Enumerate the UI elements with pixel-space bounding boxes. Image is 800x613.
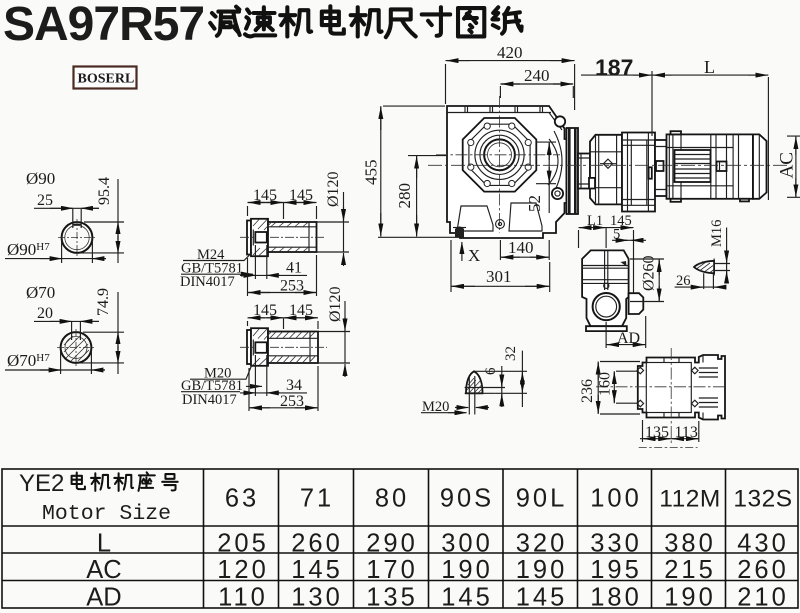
svg-text:145: 145 — [291, 556, 343, 584]
svg-text:260: 260 — [291, 530, 343, 558]
svg-text:95.4: 95.4 — [96, 177, 113, 205]
svg-text:Motor Size: Motor Size — [42, 502, 171, 526]
svg-text:160: 160 — [597, 372, 614, 396]
svg-text:145: 145 — [516, 584, 568, 612]
svg-text:280: 280 — [395, 183, 414, 209]
svg-text:L: L — [704, 57, 715, 77]
svg-text:190: 190 — [516, 556, 568, 584]
svg-text:Ø120: Ø120 — [327, 286, 344, 322]
svg-text:380: 380 — [664, 530, 716, 558]
svg-text:190: 190 — [441, 556, 493, 584]
svg-text:110: 110 — [218, 584, 268, 612]
svg-text:DIN4017: DIN4017 — [182, 392, 237, 408]
svg-text:260: 260 — [737, 556, 789, 584]
svg-text:M16: M16 — [709, 220, 725, 247]
svg-text:236: 236 — [579, 379, 596, 403]
svg-text:170: 170 — [366, 556, 418, 584]
svg-text:52: 52 — [525, 195, 544, 212]
svg-text:240: 240 — [524, 66, 550, 85]
svg-text:145: 145 — [441, 584, 493, 612]
svg-text:112M: 112M — [659, 486, 720, 513]
svg-text:YE2: YE2 — [19, 470, 64, 497]
svg-text:63: 63 — [225, 485, 259, 513]
svg-text:180: 180 — [590, 584, 642, 612]
svg-text:25: 25 — [37, 192, 53, 209]
svg-text:187: 187 — [595, 55, 633, 81]
svg-text:AD: AD — [86, 584, 121, 612]
svg-text:Ø70: Ø70 — [26, 283, 55, 302]
svg-text:190: 190 — [664, 584, 716, 612]
svg-text:145: 145 — [253, 187, 277, 204]
svg-text:205: 205 — [217, 530, 269, 558]
svg-text:L1: L1 — [587, 213, 603, 229]
svg-text:L: L — [97, 530, 111, 558]
svg-text:145: 145 — [253, 302, 277, 319]
svg-text:X: X — [468, 246, 480, 265]
svg-text:145: 145 — [289, 302, 313, 319]
svg-text:71: 71 — [300, 485, 334, 513]
svg-text:90L: 90L — [516, 485, 568, 513]
svg-text:195: 195 — [590, 556, 642, 584]
svg-text:210: 210 — [737, 584, 789, 612]
svg-text:290: 290 — [366, 530, 418, 558]
svg-text:SA97R57: SA97R57 — [3, 0, 204, 51]
svg-text:455: 455 — [362, 160, 381, 186]
svg-text:74.9: 74.9 — [95, 288, 112, 316]
svg-text:301: 301 — [486, 267, 512, 286]
svg-text:Ø260: Ø260 — [641, 255, 658, 291]
svg-text:420: 420 — [497, 43, 523, 62]
svg-text:130: 130 — [291, 584, 343, 612]
svg-text:DIN4017: DIN4017 — [180, 274, 235, 290]
svg-text:132S: 132S — [733, 486, 792, 513]
svg-text:330: 330 — [590, 530, 642, 558]
svg-text:AC: AC — [86, 556, 121, 584]
svg-text:100: 100 — [590, 485, 642, 513]
svg-text:BOSERL: BOSERL — [78, 72, 135, 87]
svg-text:AC: AC — [777, 152, 798, 178]
svg-text:90S: 90S — [440, 485, 494, 513]
svg-text:430: 430 — [737, 530, 789, 558]
svg-text:320: 320 — [516, 530, 568, 558]
svg-text:145: 145 — [289, 187, 313, 204]
svg-text:41: 41 — [286, 260, 302, 277]
svg-text:80: 80 — [375, 485, 409, 513]
svg-text:215: 215 — [664, 556, 716, 584]
svg-text:135: 135 — [366, 584, 418, 612]
svg-text:120: 120 — [217, 556, 269, 584]
svg-text:32: 32 — [503, 346, 519, 361]
svg-text:Ø120: Ø120 — [325, 171, 342, 207]
svg-text:300: 300 — [441, 530, 493, 558]
svg-text:Ø90: Ø90 — [26, 169, 55, 188]
svg-text:34: 34 — [286, 377, 302, 394]
svg-text:20: 20 — [37, 305, 53, 322]
svg-text:140: 140 — [508, 238, 534, 257]
